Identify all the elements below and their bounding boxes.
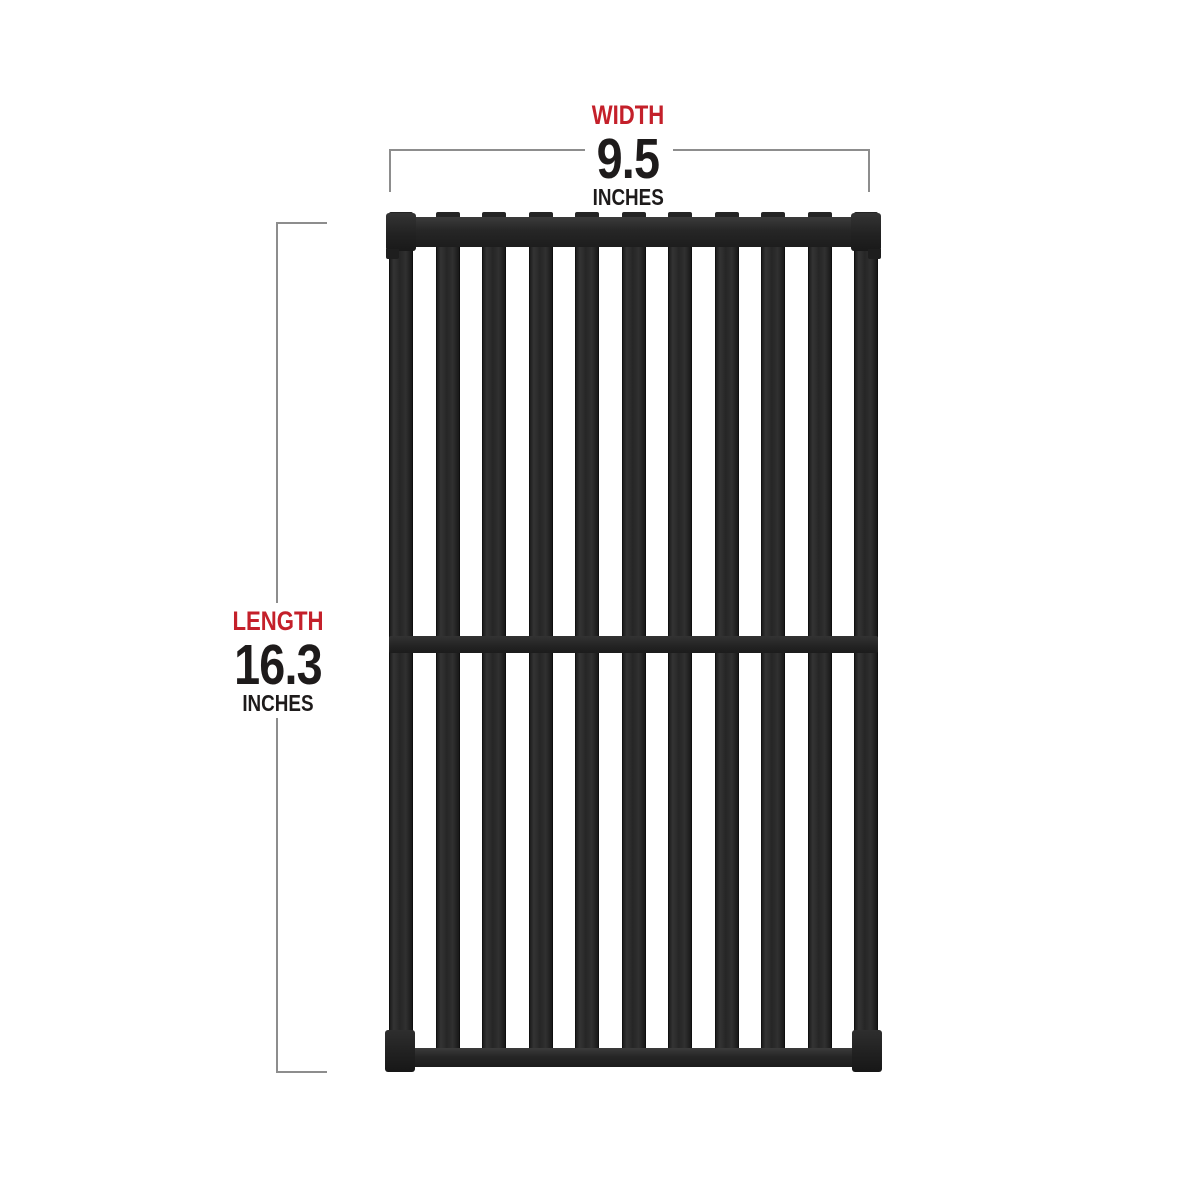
width-dim-line-right-segment — [673, 149, 870, 151]
width-dim-line-left-segment — [389, 149, 585, 151]
length-dim-tick-top — [276, 222, 327, 224]
grill-grate-image — [389, 212, 878, 1072]
width-value: 9.5 — [597, 132, 660, 186]
grate-top-rail — [389, 217, 878, 247]
grate-bottom-rail — [389, 1048, 878, 1067]
grate-corner-bottom-right — [852, 1030, 882, 1072]
grate-corner-top-left — [386, 213, 416, 251]
grate-corner-top-right — [851, 213, 881, 251]
width-dim-tick-right — [868, 149, 870, 192]
length-annotation: LENGTH 16.3 INCHES — [223, 608, 334, 715]
width-dim-tick-left — [389, 149, 391, 192]
grate-corner-bottom-left — [385, 1030, 415, 1072]
width-unit: INCHES — [592, 186, 663, 209]
grate-middle-crossbar — [389, 636, 878, 653]
length-dim-line-bottom-segment — [276, 718, 278, 1073]
length-dim-tick-bottom — [276, 1071, 327, 1073]
length-value: 16.3 — [234, 638, 322, 692]
product-dimension-diagram: WIDTH 9.5 INCHES LENGTH 16.3 INCHES — [0, 0, 1200, 1200]
length-label: LENGTH — [232, 608, 323, 635]
width-label: WIDTH — [592, 102, 665, 129]
width-annotation: WIDTH 9.5 INCHES — [584, 102, 672, 209]
length-unit: INCHES — [242, 692, 313, 715]
length-dim-line-top-segment — [276, 222, 278, 603]
